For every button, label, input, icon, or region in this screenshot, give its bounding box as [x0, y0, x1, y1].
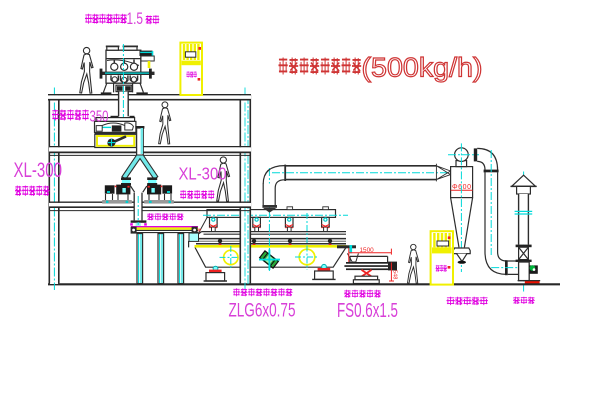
svg-text:XL-300: XL-300: [179, 164, 227, 184]
svg-text:FS0.6x1.5: FS0.6x1.5: [337, 300, 398, 322]
svg-text:350: 350: [90, 109, 109, 126]
svg-text:(500kg/h): (500kg/h): [362, 53, 483, 83]
svg-text:ZLG6x0.75: ZLG6x0.75: [229, 300, 296, 322]
svg-text:1.5: 1.5: [127, 9, 144, 28]
svg-text:548: 548: [392, 270, 398, 279]
svg-text:XL-300: XL-300: [14, 159, 63, 182]
svg-text:1500: 1500: [360, 247, 375, 254]
